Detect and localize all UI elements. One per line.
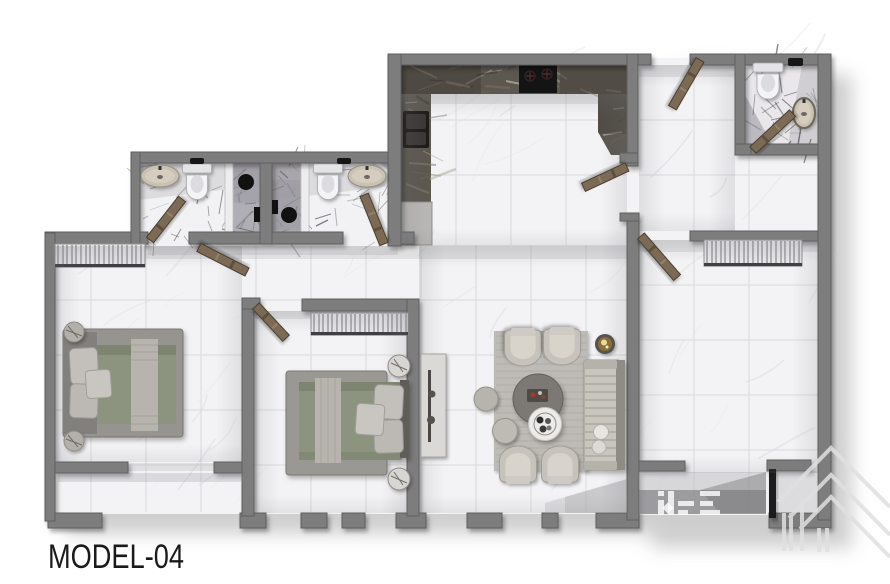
svg-text:MODEL-04: MODEL-04 (48, 538, 184, 576)
